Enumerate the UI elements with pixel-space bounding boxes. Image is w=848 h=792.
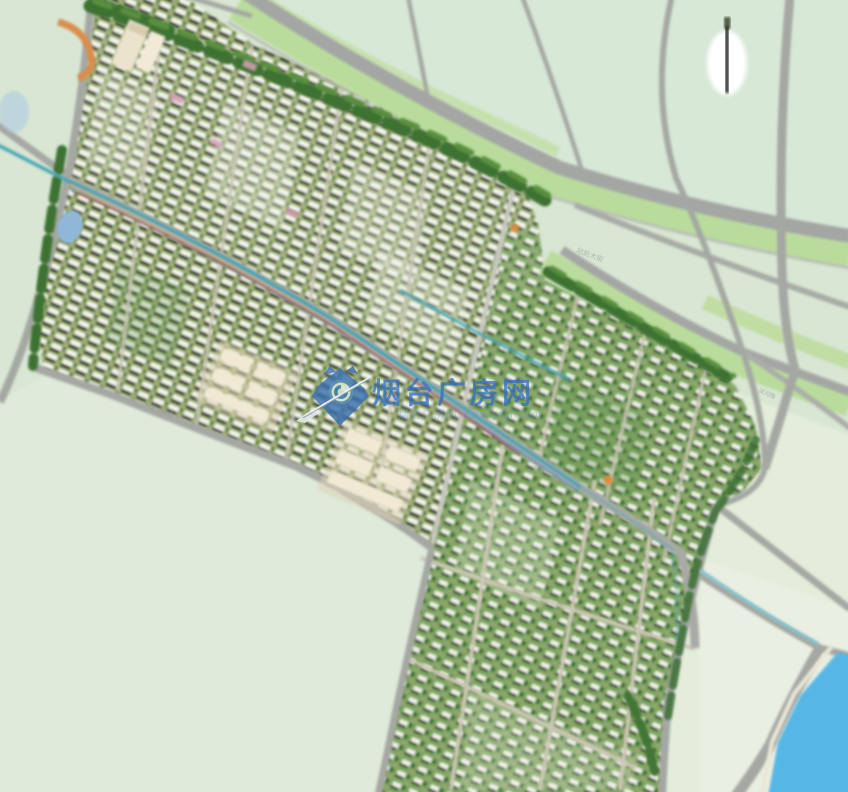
svg-text:烟台广房网 www.ytgf.com: 烟台广房网 www.ytgf.com — [398, 407, 542, 421]
svg-text:烟台广房网: 烟台广房网 — [372, 376, 535, 410]
